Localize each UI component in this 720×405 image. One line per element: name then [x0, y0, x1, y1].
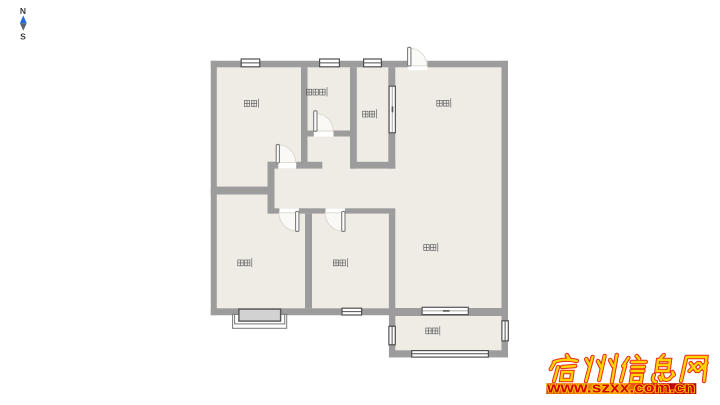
svg-text:N: N	[20, 6, 26, 16]
svg-text:S: S	[20, 32, 26, 42]
